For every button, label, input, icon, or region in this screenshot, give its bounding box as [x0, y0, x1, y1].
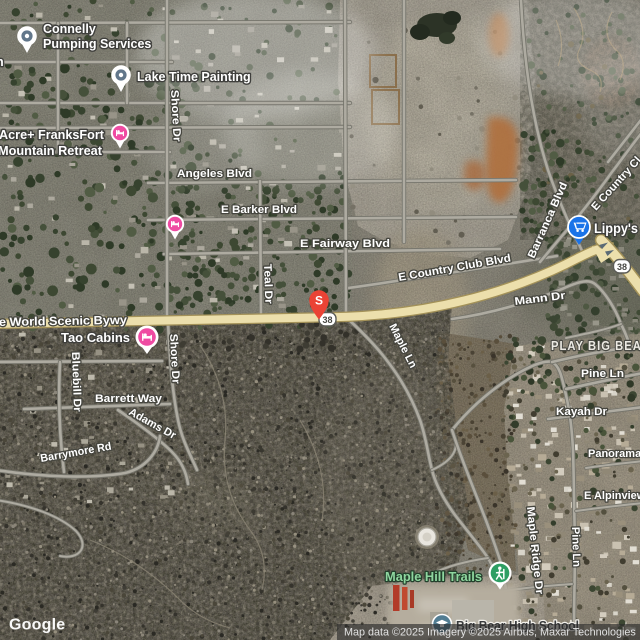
svg-text:Barrett Way: Barrett Way — [95, 393, 163, 405]
svg-text:Lake Time Painting: Lake Time Painting — [137, 70, 251, 84]
svg-text:n: n — [0, 55, 4, 69]
svg-text:Pumping Services: Pumping Services — [43, 37, 151, 51]
svg-text:E Alpinview: E Alpinview — [584, 490, 640, 502]
svg-text:E Fairway Blvd: E Fairway Blvd — [300, 238, 390, 250]
svg-text:Bluebill Dr: Bluebill Dr — [69, 352, 83, 413]
svg-text:E Barker Blvd: E Barker Blvd — [221, 204, 297, 216]
svg-text:38: 38 — [322, 315, 332, 325]
svg-text:PLAY BIG BEAR: PLAY BIG BEAR — [551, 338, 640, 353]
svg-text:Tao Cabins: Tao Cabins — [61, 331, 130, 345]
svg-text:Google: Google — [9, 617, 65, 634]
svg-text:Kayah Dr: Kayah Dr — [556, 406, 608, 418]
svg-text:e World Scenic Bywy: e World Scenic Bywy — [0, 313, 127, 329]
svg-text:Mountain Retreat: Mountain Retreat — [0, 144, 103, 158]
svg-text:Pine Ln: Pine Ln — [569, 527, 582, 568]
svg-text:38: 38 — [617, 262, 627, 272]
svg-text:Panorama: Panorama — [588, 448, 640, 460]
svg-text:Connelly: Connelly — [43, 22, 96, 36]
svg-text:Map data ©2025 Imagery ©2025 A: Map data ©2025 Imagery ©2025 Airbus, Max… — [344, 627, 636, 639]
svg-text:Angeles Blvd: Angeles Blvd — [177, 168, 252, 180]
svg-text:Maple Hill Trails: Maple Hill Trails — [385, 570, 482, 584]
svg-text:Pine Ln: Pine Ln — [581, 368, 624, 380]
svg-text:Teal Dr: Teal Dr — [261, 264, 274, 305]
svg-text:S: S — [315, 294, 323, 308]
svg-text:Acre+ FranksFort: Acre+ FranksFort — [0, 128, 105, 142]
svg-text:Lippy's: Lippy's — [594, 221, 638, 236]
